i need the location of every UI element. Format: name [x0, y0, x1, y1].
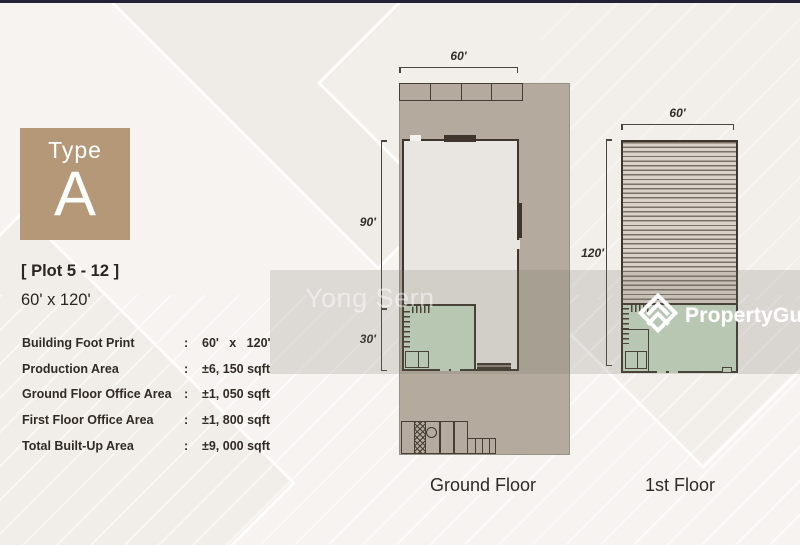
spec-separator: :	[184, 336, 202, 350]
spec-value: 60' x 120'	[202, 336, 271, 350]
spec-value: ±6, 150 sqft	[202, 362, 270, 376]
spec-separator: :	[184, 362, 202, 376]
gf-toilet	[405, 351, 429, 368]
spec-label: Production Area	[22, 362, 184, 376]
spec-label: Ground Floor Office Area	[22, 387, 184, 401]
gf-office-area	[402, 304, 476, 371]
gf-top-canopy-cells	[399, 83, 523, 101]
gf-office-door	[451, 369, 460, 371]
spec-row-production-area: Production Area : ±6, 150 sqft	[22, 356, 312, 382]
first-floor-caption: 1st Floor	[620, 475, 740, 496]
spec-value: ±9, 000 sqft	[202, 439, 270, 453]
spec-label: First Floor Office Area	[22, 413, 184, 427]
type-badge: Type A	[20, 128, 130, 240]
ff-top-dimension-label: 60'	[621, 106, 734, 120]
gf-left-lower-dimension-label: 30'	[344, 332, 376, 346]
gf-top-dimension-label: 60'	[399, 49, 518, 63]
top-border-strip	[0, 0, 800, 3]
ff-office-door	[669, 371, 678, 373]
spec-label: Total Built-Up Area	[22, 439, 184, 453]
gf-entry-door	[410, 135, 421, 141]
spec-row-first-floor-office: First Floor Office Area : ±1, 800 sqft	[22, 407, 312, 433]
spec-value: ±1, 800 sqft	[202, 413, 270, 427]
gf-side-door	[516, 240, 520, 249]
staircase-icon	[404, 311, 410, 351]
gf-utility-block	[401, 421, 468, 454]
gf-left-dimension-bracket	[381, 140, 388, 371]
ground-floor-caption: Ground Floor	[398, 475, 568, 496]
ff-left-dimension-bracket	[606, 139, 613, 366]
type-badge-letter: A	[20, 164, 130, 224]
brand-watermark: PropertyGuru	[637, 292, 800, 339]
gf-loading-bay	[444, 135, 476, 142]
brand-watermark-text: PropertyGuru	[685, 304, 800, 328]
agent-watermark: Yong Sern	[305, 283, 435, 314]
ff-roof-deck	[623, 142, 736, 303]
spec-row-total-built-up: Total Built-Up Area : ±9, 000 sqft	[22, 433, 312, 459]
gf-office-door	[440, 369, 449, 371]
ff-toilet	[625, 351, 647, 369]
ff-bottom-notch	[722, 367, 732, 373]
gf-louvre-bar	[477, 363, 511, 369]
plot-size-text: 60' x 120'	[21, 291, 91, 310]
gf-roller-shutter	[517, 203, 522, 238]
propertyguru-logo-icon	[637, 292, 679, 339]
gf-top-dimension-bracket	[399, 67, 518, 74]
gf-annex-cells	[468, 438, 496, 454]
spec-list: Building Foot Print : 60' x 120' Product…	[22, 330, 312, 458]
plot-range-text: [ Plot 5 - 12 ]	[21, 262, 119, 281]
spiral-stair-icon	[426, 427, 437, 438]
ff-office-door	[657, 371, 666, 373]
spec-row-ground-floor-office: Ground Floor Office Area : ±1, 050 sqft	[22, 381, 312, 407]
ff-top-dimension-bracket	[621, 124, 734, 131]
spec-row-building-foot-print: Building Foot Print : 60' x 120'	[22, 330, 312, 356]
spec-separator: :	[184, 439, 202, 453]
spec-value: ±1, 050 sqft	[202, 387, 270, 401]
spec-separator: :	[184, 387, 202, 401]
ff-left-dimension-label: 120'	[570, 246, 604, 260]
gf-utility-hatch	[414, 422, 426, 453]
spec-separator: :	[184, 413, 202, 427]
ground-floor-plan	[399, 83, 570, 455]
spec-label: Building Foot Print	[22, 336, 184, 350]
gf-left-upper-dimension-label: 90'	[344, 215, 376, 229]
floorplan-brochure: Type A [ Plot 5 - 12 ] 60' x 120' Buildi…	[0, 0, 800, 545]
